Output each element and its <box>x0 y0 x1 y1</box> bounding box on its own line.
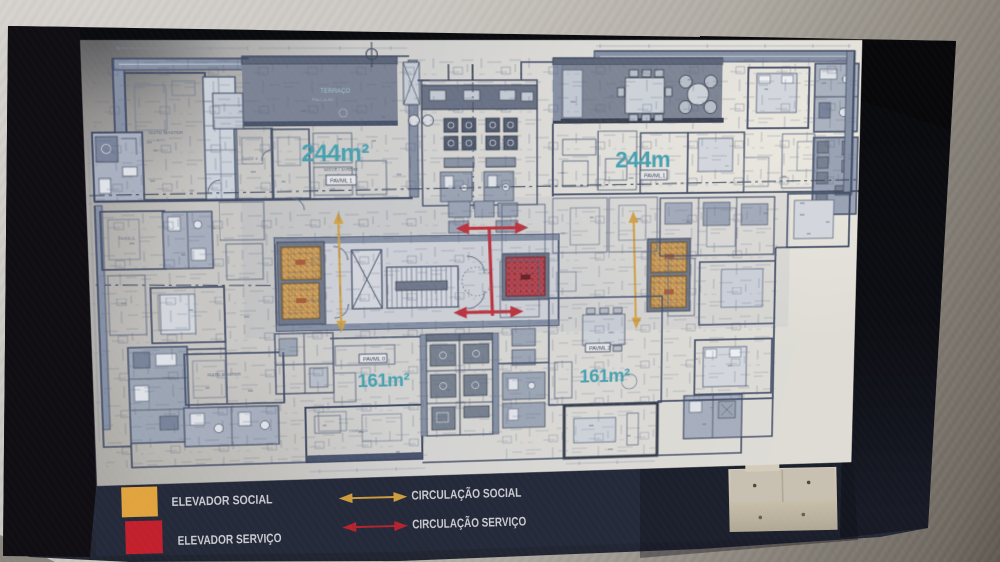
svg-text:PAVML 1: PAVML 1 <box>330 179 352 185</box>
svg-text:244m: 244m <box>615 148 670 174</box>
svg-text:PAVML 1: PAVML 1 <box>644 174 665 180</box>
svg-text:ELEVADOR SOCIAL: ELEVADOR SOCIAL <box>171 492 273 509</box>
svg-text:161m²: 161m² <box>357 370 410 391</box>
svg-text:161m²: 161m² <box>580 366 631 387</box>
svg-text:CIRCULAÇÃO SOCIAL: CIRCULAÇÃO SOCIAL <box>411 485 522 503</box>
svg-text:PAVML 2: PAVML 2 <box>589 346 610 352</box>
svg-text:PAVML 0: PAVML 0 <box>363 357 385 363</box>
svg-text:244m²: 244m² <box>301 140 369 167</box>
svg-text:ELEVADOR SERVIÇO: ELEVADOR SERVIÇO <box>177 531 282 548</box>
svg-text:WXYZ / JARDIM: WXYZ / JARDIM <box>324 167 358 173</box>
svg-text:CIRCULAÇÃO SERVIÇO: CIRCULAÇÃO SERVIÇO <box>412 513 527 531</box>
